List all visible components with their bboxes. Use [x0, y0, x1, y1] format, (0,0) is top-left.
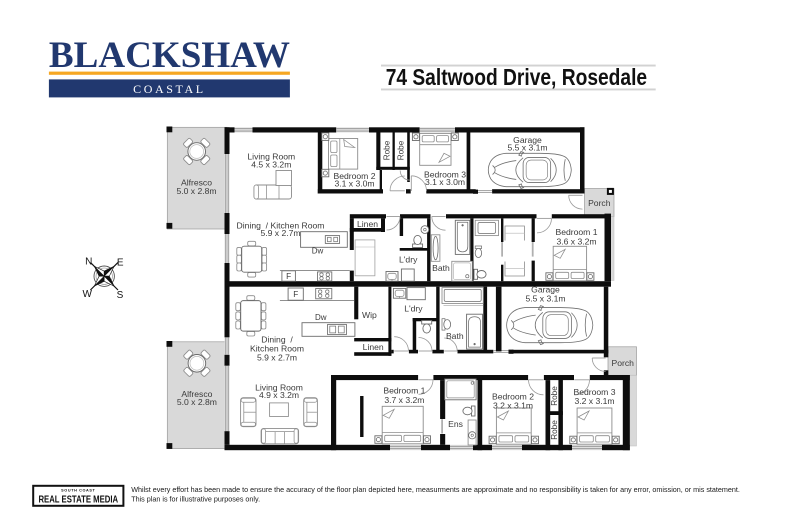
svg-text:3.1 x 3.0m: 3.1 x 3.0m: [425, 177, 465, 187]
svg-text:Dw: Dw: [315, 313, 327, 322]
svg-text:BLACKSHAW: BLACKSHAW: [49, 34, 290, 75]
svg-text:Robe: Robe: [550, 386, 559, 406]
svg-text:E: E: [117, 258, 124, 269]
svg-text:L'dry: L'dry: [399, 255, 418, 265]
svg-text:74 Saltwood Drive, Rosedale: 74 Saltwood Drive, Rosedale: [386, 64, 647, 90]
svg-text:5.5 x 3.1m: 5.5 x 3.1m: [525, 293, 565, 303]
svg-text:Robe: Robe: [397, 140, 406, 160]
svg-text:Robe: Robe: [382, 140, 391, 160]
svg-text:This plan is for illustrative: This plan is for illustrative purposes o…: [131, 495, 260, 504]
svg-text:Bedroom 1: Bedroom 1: [555, 227, 597, 237]
svg-text:Linen: Linen: [357, 219, 378, 229]
svg-text:F: F: [286, 272, 291, 281]
svg-text:COASTAL: COASTAL: [133, 82, 206, 96]
svg-text:SOUTH COAST: SOUTH COAST: [61, 488, 95, 492]
svg-text:3.2 x 3.1m: 3.2 x 3.1m: [493, 401, 533, 411]
svg-text:4.5 x 3.2m: 4.5 x 3.2m: [251, 159, 291, 169]
svg-text:3.1 x 3.0m: 3.1 x 3.0m: [334, 179, 374, 189]
svg-text:Porch: Porch: [588, 198, 611, 208]
svg-text:5.5 x 3.1m: 5.5 x 3.1m: [507, 143, 547, 153]
svg-text:REAL ESTATE MEDIA: REAL ESTATE MEDIA: [38, 494, 118, 506]
svg-text:5.9 x 2.7m: 5.9 x 2.7m: [257, 352, 297, 362]
svg-text:5.0 x 2.8m: 5.0 x 2.8m: [176, 186, 216, 196]
svg-text:3.6 x 3.2m: 3.6 x 3.2m: [556, 236, 596, 246]
svg-text:L'dry: L'dry: [404, 303, 423, 313]
svg-text:F: F: [293, 290, 298, 299]
svg-text:Robe: Robe: [550, 420, 559, 440]
svg-text:Bath: Bath: [446, 331, 464, 341]
svg-text:3.7 x 3.2m: 3.7 x 3.2m: [384, 395, 424, 405]
svg-text:Wip: Wip: [362, 310, 377, 320]
svg-text:Linen: Linen: [363, 342, 384, 352]
svg-text:N: N: [85, 257, 92, 268]
svg-text:5.9 x 2.7m: 5.9 x 2.7m: [260, 228, 300, 238]
svg-text:Dw: Dw: [312, 246, 324, 255]
svg-text:Ens: Ens: [448, 419, 463, 429]
svg-text:4.9 x 3.2m: 4.9 x 3.2m: [259, 390, 299, 400]
svg-text:Porch: Porch: [611, 358, 634, 368]
svg-text:W: W: [82, 289, 92, 300]
svg-text:5.0 x 2.8m: 5.0 x 2.8m: [177, 397, 217, 407]
svg-text:S: S: [117, 290, 124, 301]
svg-text:3.2 x 3.1m: 3.2 x 3.1m: [574, 396, 614, 406]
svg-text:Whilst every effort has been m: Whilst every effort has been made to ens…: [131, 485, 740, 494]
svg-text:Bath: Bath: [432, 263, 450, 273]
